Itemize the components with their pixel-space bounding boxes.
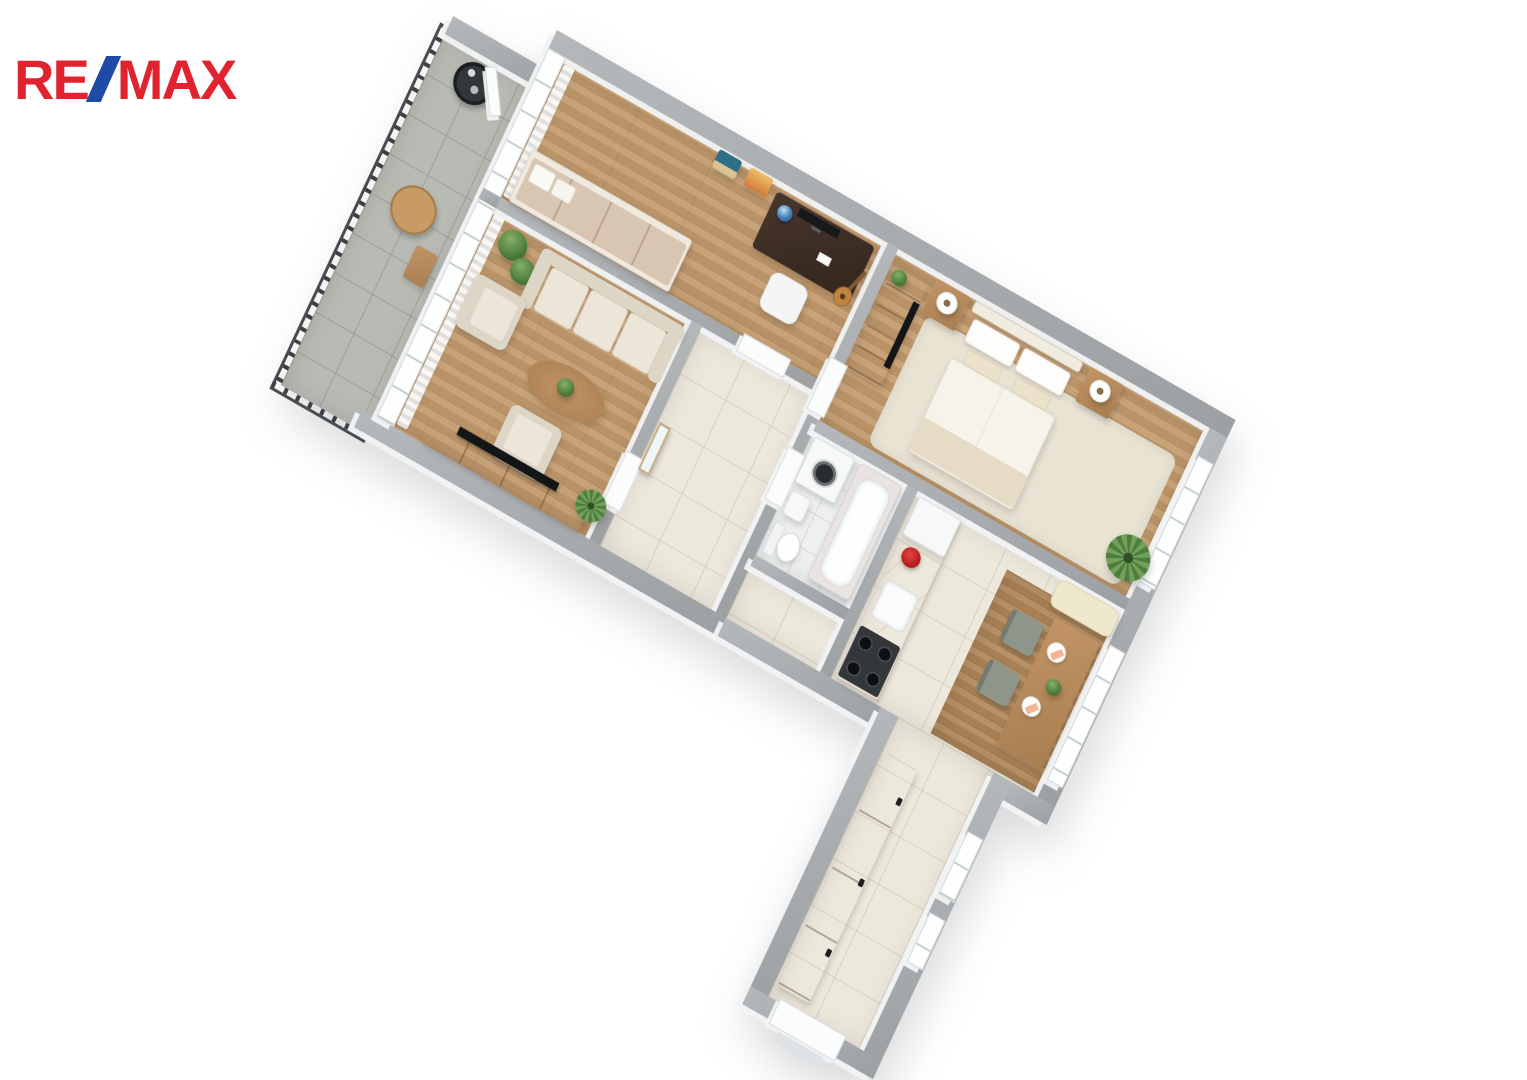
washing-machine-door xyxy=(806,454,842,493)
logo-max: MAX xyxy=(117,57,235,103)
plate-1-napkin xyxy=(1050,649,1064,661)
logo-slash-icon xyxy=(86,56,121,102)
remax-logo: RE MAX xyxy=(14,56,235,103)
plate-2-napkin xyxy=(1025,703,1039,715)
floor-plan xyxy=(126,0,1271,1080)
stage: RE MAX xyxy=(0,0,1527,1080)
logo-re: RE xyxy=(14,57,88,103)
